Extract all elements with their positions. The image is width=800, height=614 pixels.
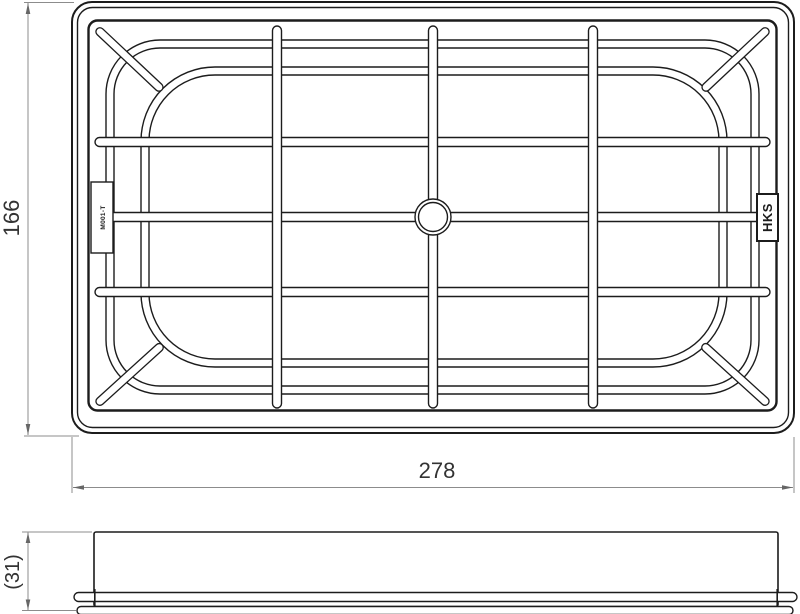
filter-side-view <box>74 532 797 614</box>
brand-logo-plate: HKS <box>757 194 778 241</box>
part-number-tab: M001-T <box>91 182 113 253</box>
dimension-width: 278 <box>72 437 794 493</box>
width-dimension-label: 278 <box>419 458 456 483</box>
center-hub-outer <box>415 199 451 235</box>
side-view-media-strip-top <box>74 593 797 602</box>
dimension-height: 166 <box>0 3 79 437</box>
height-dimension-label: 166 <box>0 200 24 237</box>
side-view-media-strip-bottom <box>77 607 793 614</box>
air-filter-technical-drawing: M001-T HKS 166 278 <box>0 0 800 614</box>
part-tab-label: M001-T <box>100 205 107 229</box>
filter-top-view: M001-T HKS <box>72 2 794 433</box>
brand-label: HKS <box>760 203 775 232</box>
thickness-dimension-label: (31) <box>2 554 24 590</box>
